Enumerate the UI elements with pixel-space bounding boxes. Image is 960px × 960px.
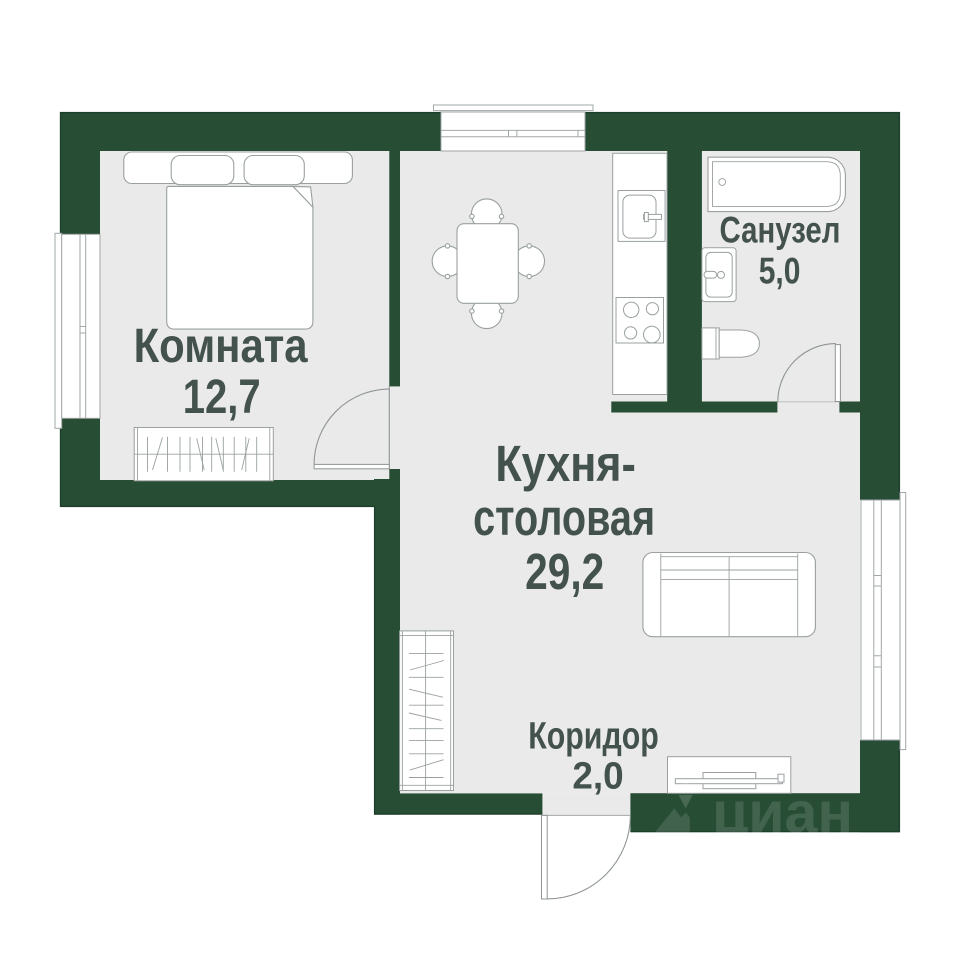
svg-text:Санузел: Санузел (720, 210, 841, 251)
svg-text:29,2: 29,2 (525, 543, 604, 600)
svg-text:столовая: столовая (473, 489, 655, 546)
svg-text:Комната: Комната (134, 320, 308, 373)
svg-text:Кухня-: Кухня- (495, 435, 636, 492)
svg-text:12,7: 12,7 (183, 371, 261, 424)
svg-text:5,0: 5,0 (759, 250, 801, 291)
svg-text:циан: циан (712, 781, 853, 846)
svg-text:2,0: 2,0 (572, 756, 623, 798)
svg-text:Коридор: Коридор (528, 716, 659, 758)
